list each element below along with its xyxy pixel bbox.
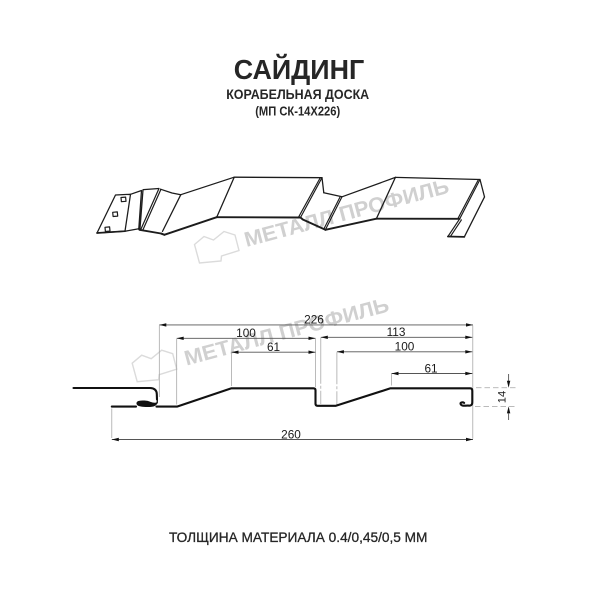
- svg-text:113: 113: [387, 325, 406, 339]
- svg-text:САЙДИНГ: САЙДИНГ: [234, 53, 365, 85]
- svg-text:(МП СК-14Х226): (МП СК-14Х226): [255, 103, 340, 118]
- svg-text:61: 61: [424, 361, 437, 375]
- svg-text:14: 14: [496, 391, 508, 403]
- svg-text:ТОЛЩИНА МАТЕРИАЛА 0.4/0,45/0,5: ТОЛЩИНА МАТЕРИАЛА 0.4/0,45/0,5 ММ: [169, 530, 428, 546]
- svg-text:61: 61: [267, 340, 280, 354]
- svg-text:КОРАБЕЛЬНАЯ ДОСКА: КОРАБЕЛЬНАЯ ДОСКА: [226, 87, 369, 103]
- svg-text:226: 226: [304, 313, 324, 327]
- svg-text:100: 100: [395, 340, 415, 354]
- svg-text:100: 100: [236, 326, 256, 340]
- svg-text:260: 260: [281, 427, 301, 441]
